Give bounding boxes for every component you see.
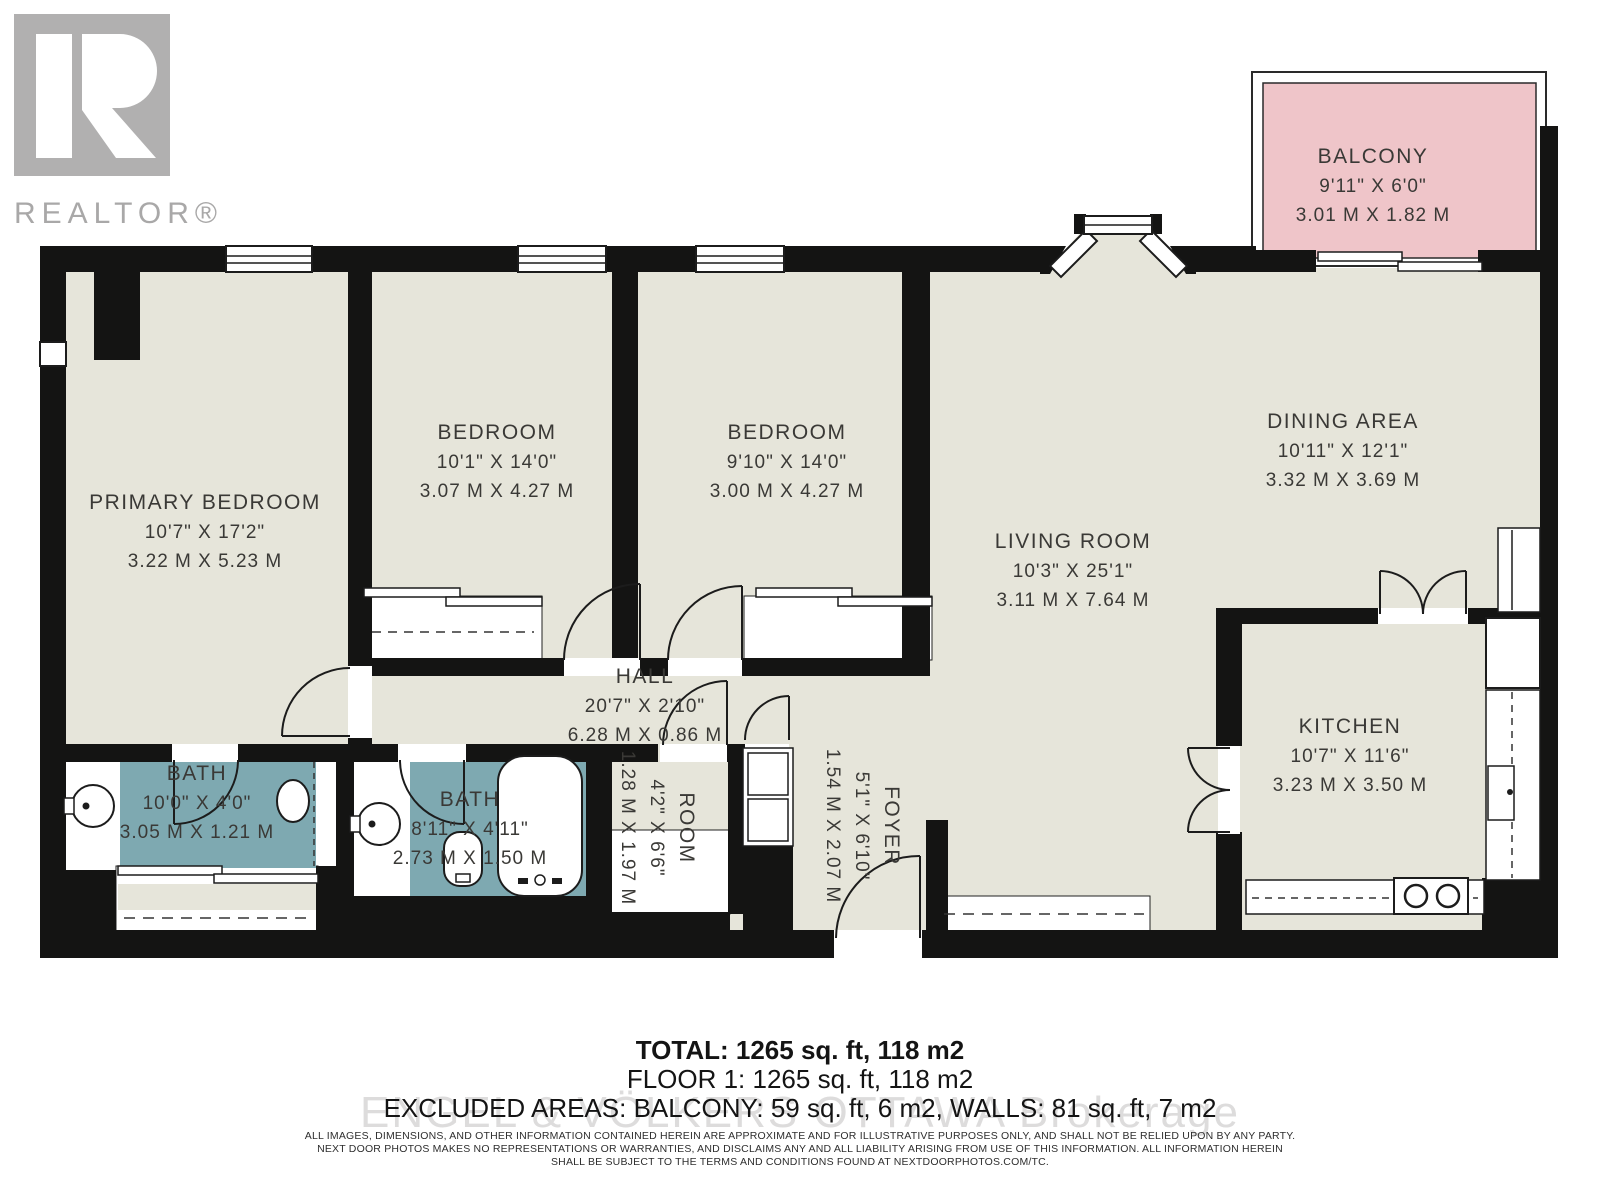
label-foyer: FOYER 5'1" X 6'10" 1.54 M X 2.07 M xyxy=(821,749,903,903)
realtor-logo: REALTOR® xyxy=(14,14,223,231)
room-dim-imperial: 9'10" X 14'0" xyxy=(710,452,864,474)
room-dim-imperial: 4'2" X 6'6" xyxy=(645,751,667,905)
room-dim-imperial: 20'7" X 2'10" xyxy=(568,696,722,718)
stove-icon xyxy=(1394,878,1468,914)
room-name: ROOM xyxy=(674,751,698,905)
room-name: PRIMARY BEDROOM xyxy=(89,491,321,515)
room-name: BEDROOM xyxy=(710,421,864,445)
toilet-icon xyxy=(277,780,309,822)
room-dim-metric: 1.28 M X 1.97 M xyxy=(616,751,638,905)
room-name: FOYER xyxy=(879,749,903,903)
room-dim-imperial: 9'11" X 6'0" xyxy=(1296,176,1450,198)
disclaimer-line: SHALL BE SUBJECT TO THE TERMS AND CONDIT… xyxy=(0,1156,1600,1169)
disclaimer: ALL IMAGES, DIMENSIONS, AND OTHER INFORM… xyxy=(0,1130,1600,1169)
realtor-wordmark: REALTOR® xyxy=(14,197,223,231)
kitchen-counter-right xyxy=(1486,690,1540,880)
room-dim-metric: 1.54 M X 2.07 M xyxy=(821,749,843,903)
floor-plan-page: REALTOR® BALCONY 9'11" X 6'0" 3.01 M X 1… xyxy=(0,0,1600,1200)
room-dim-metric: 3.01 M X 1.82 M xyxy=(1296,205,1450,227)
realtor-logo-mark xyxy=(14,14,184,184)
area-summary: TOTAL: 1265 sq. ft, 118 m2 FLOOR 1: 1265… xyxy=(0,1036,1600,1169)
label-hall: HALL 20'7" X 2'10" 6.28 M X 0.86 M xyxy=(568,665,722,747)
room-name: BEDROOM xyxy=(420,421,574,445)
room-dim-metric: 3.22 M X 5.23 M xyxy=(89,551,321,573)
room-name: DINING AREA xyxy=(1266,410,1420,434)
label-bedroom1: BEDROOM 10'1" X 14'0" 3.07 M X 4.27 M xyxy=(420,421,574,503)
room-dim-metric: 3.07 M X 4.27 M xyxy=(420,481,574,503)
label-bedroom2: BEDROOM 9'10" X 14'0" 3.00 M X 4.27 M xyxy=(710,421,864,503)
hall-closet xyxy=(743,748,793,846)
room-name: LIVING ROOM xyxy=(995,530,1152,554)
room-dim-imperial: 10'11" X 12'1" xyxy=(1266,441,1420,463)
room-dim-imperial: 8'11" X 4'11" xyxy=(393,819,547,841)
room-dim-imperial: 5'1" X 6'10" xyxy=(850,749,872,903)
label-living-room: LIVING ROOM 10'3" X 25'1" 3.11 M X 7.64 … xyxy=(995,530,1152,612)
room-dim-metric: 3.11 M X 7.64 M xyxy=(995,590,1152,612)
room-name: HALL xyxy=(568,665,722,689)
room-dim-imperial: 10'7" X 11'6" xyxy=(1273,746,1427,768)
excluded-areas: EXCLUDED AREAS: BALCONY: 59 sq. ft, 6 m2… xyxy=(0,1094,1600,1123)
room-dim-metric: 3.00 M X 4.27 M xyxy=(710,481,864,503)
disclaimer-line: NEXT DOOR PHOTOS MAKES NO REPRESENTATION… xyxy=(0,1143,1600,1156)
room-dim-metric: 6.28 M X 0.86 M xyxy=(568,725,722,747)
label-dining-area: DINING AREA 10'11" X 12'1" 3.32 M X 3.69… xyxy=(1266,410,1420,492)
room-dim-imperial: 10'3" X 25'1" xyxy=(995,561,1152,583)
room-name: KITCHEN xyxy=(1273,715,1427,739)
label-primary-bedroom: PRIMARY BEDROOM 10'7" X 17'2" 3.22 M X 5… xyxy=(89,491,321,573)
room-dim-metric: 2.73 M X 1.50 M xyxy=(393,848,547,870)
room-name: BALCONY xyxy=(1296,145,1450,169)
label-bath1: BATH 10'0" X 4'0" 3.05 M X 1.21 M xyxy=(120,762,274,844)
disclaimer-line: ALL IMAGES, DIMENSIONS, AND OTHER INFORM… xyxy=(0,1130,1600,1143)
room-name: BATH xyxy=(120,762,274,786)
label-room: ROOM 4'2" X 6'6" 1.28 M X 1.97 M xyxy=(616,751,698,905)
label-kitchen: KITCHEN 10'7" X 11'6" 3.23 M X 3.50 M xyxy=(1273,715,1427,797)
room-dim-metric: 3.32 M X 3.69 M xyxy=(1266,470,1420,492)
room-dim-metric: 3.23 M X 3.50 M xyxy=(1273,775,1427,797)
room-name: BATH xyxy=(393,788,547,812)
total-area: TOTAL: 1265 sq. ft, 118 m2 xyxy=(0,1036,1600,1065)
label-bath2: BATH 8'11" X 4'11" 2.73 M X 1.50 M xyxy=(393,788,547,870)
room-dim-metric: 3.05 M X 1.21 M xyxy=(120,822,274,844)
label-balcony: BALCONY 9'11" X 6'0" 3.01 M X 1.82 M xyxy=(1296,145,1450,227)
room-dim-imperial: 10'1" X 14'0" xyxy=(420,452,574,474)
room-dim-imperial: 10'0" X 4'0" xyxy=(120,793,274,815)
room-dim-imperial: 10'7" X 17'2" xyxy=(89,522,321,544)
fridge-icon xyxy=(1486,618,1540,688)
floor1-area: FLOOR 1: 1265 sq. ft, 118 m2 xyxy=(0,1065,1600,1094)
